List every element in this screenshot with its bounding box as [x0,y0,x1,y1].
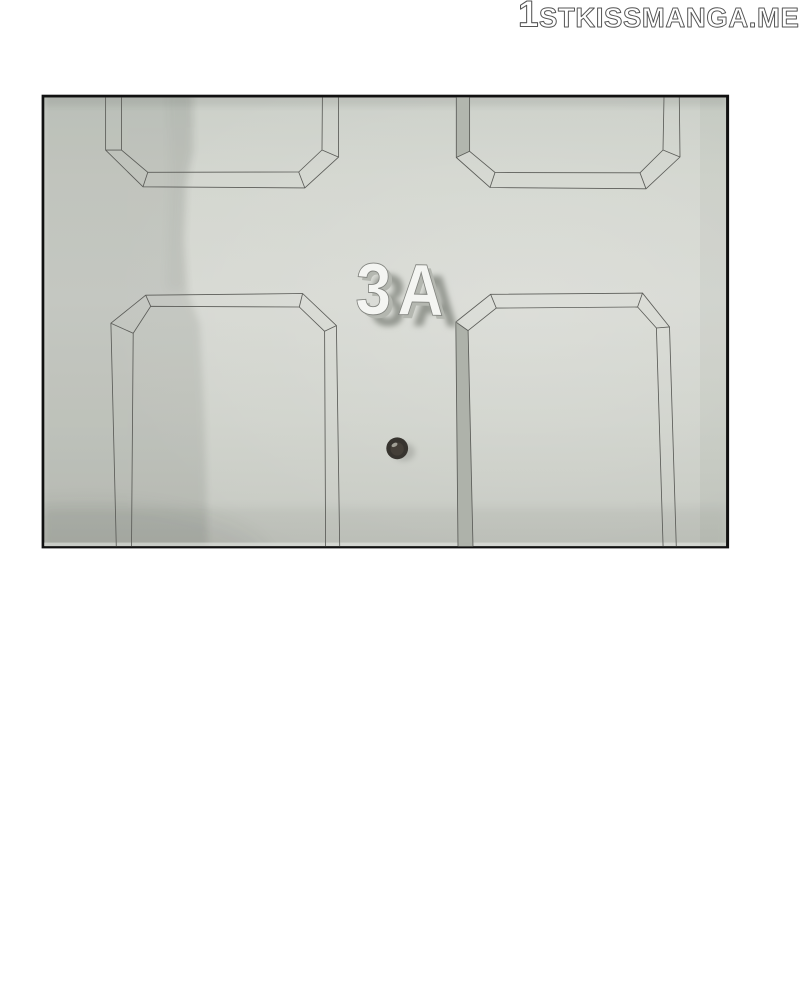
svg-text:3: 3 [355,248,392,330]
svg-text:A: A [397,249,445,332]
svg-text:STKISSMANGA.ME: STKISSMANGA.ME [539,2,800,33]
svg-text:1: 1 [518,0,539,35]
